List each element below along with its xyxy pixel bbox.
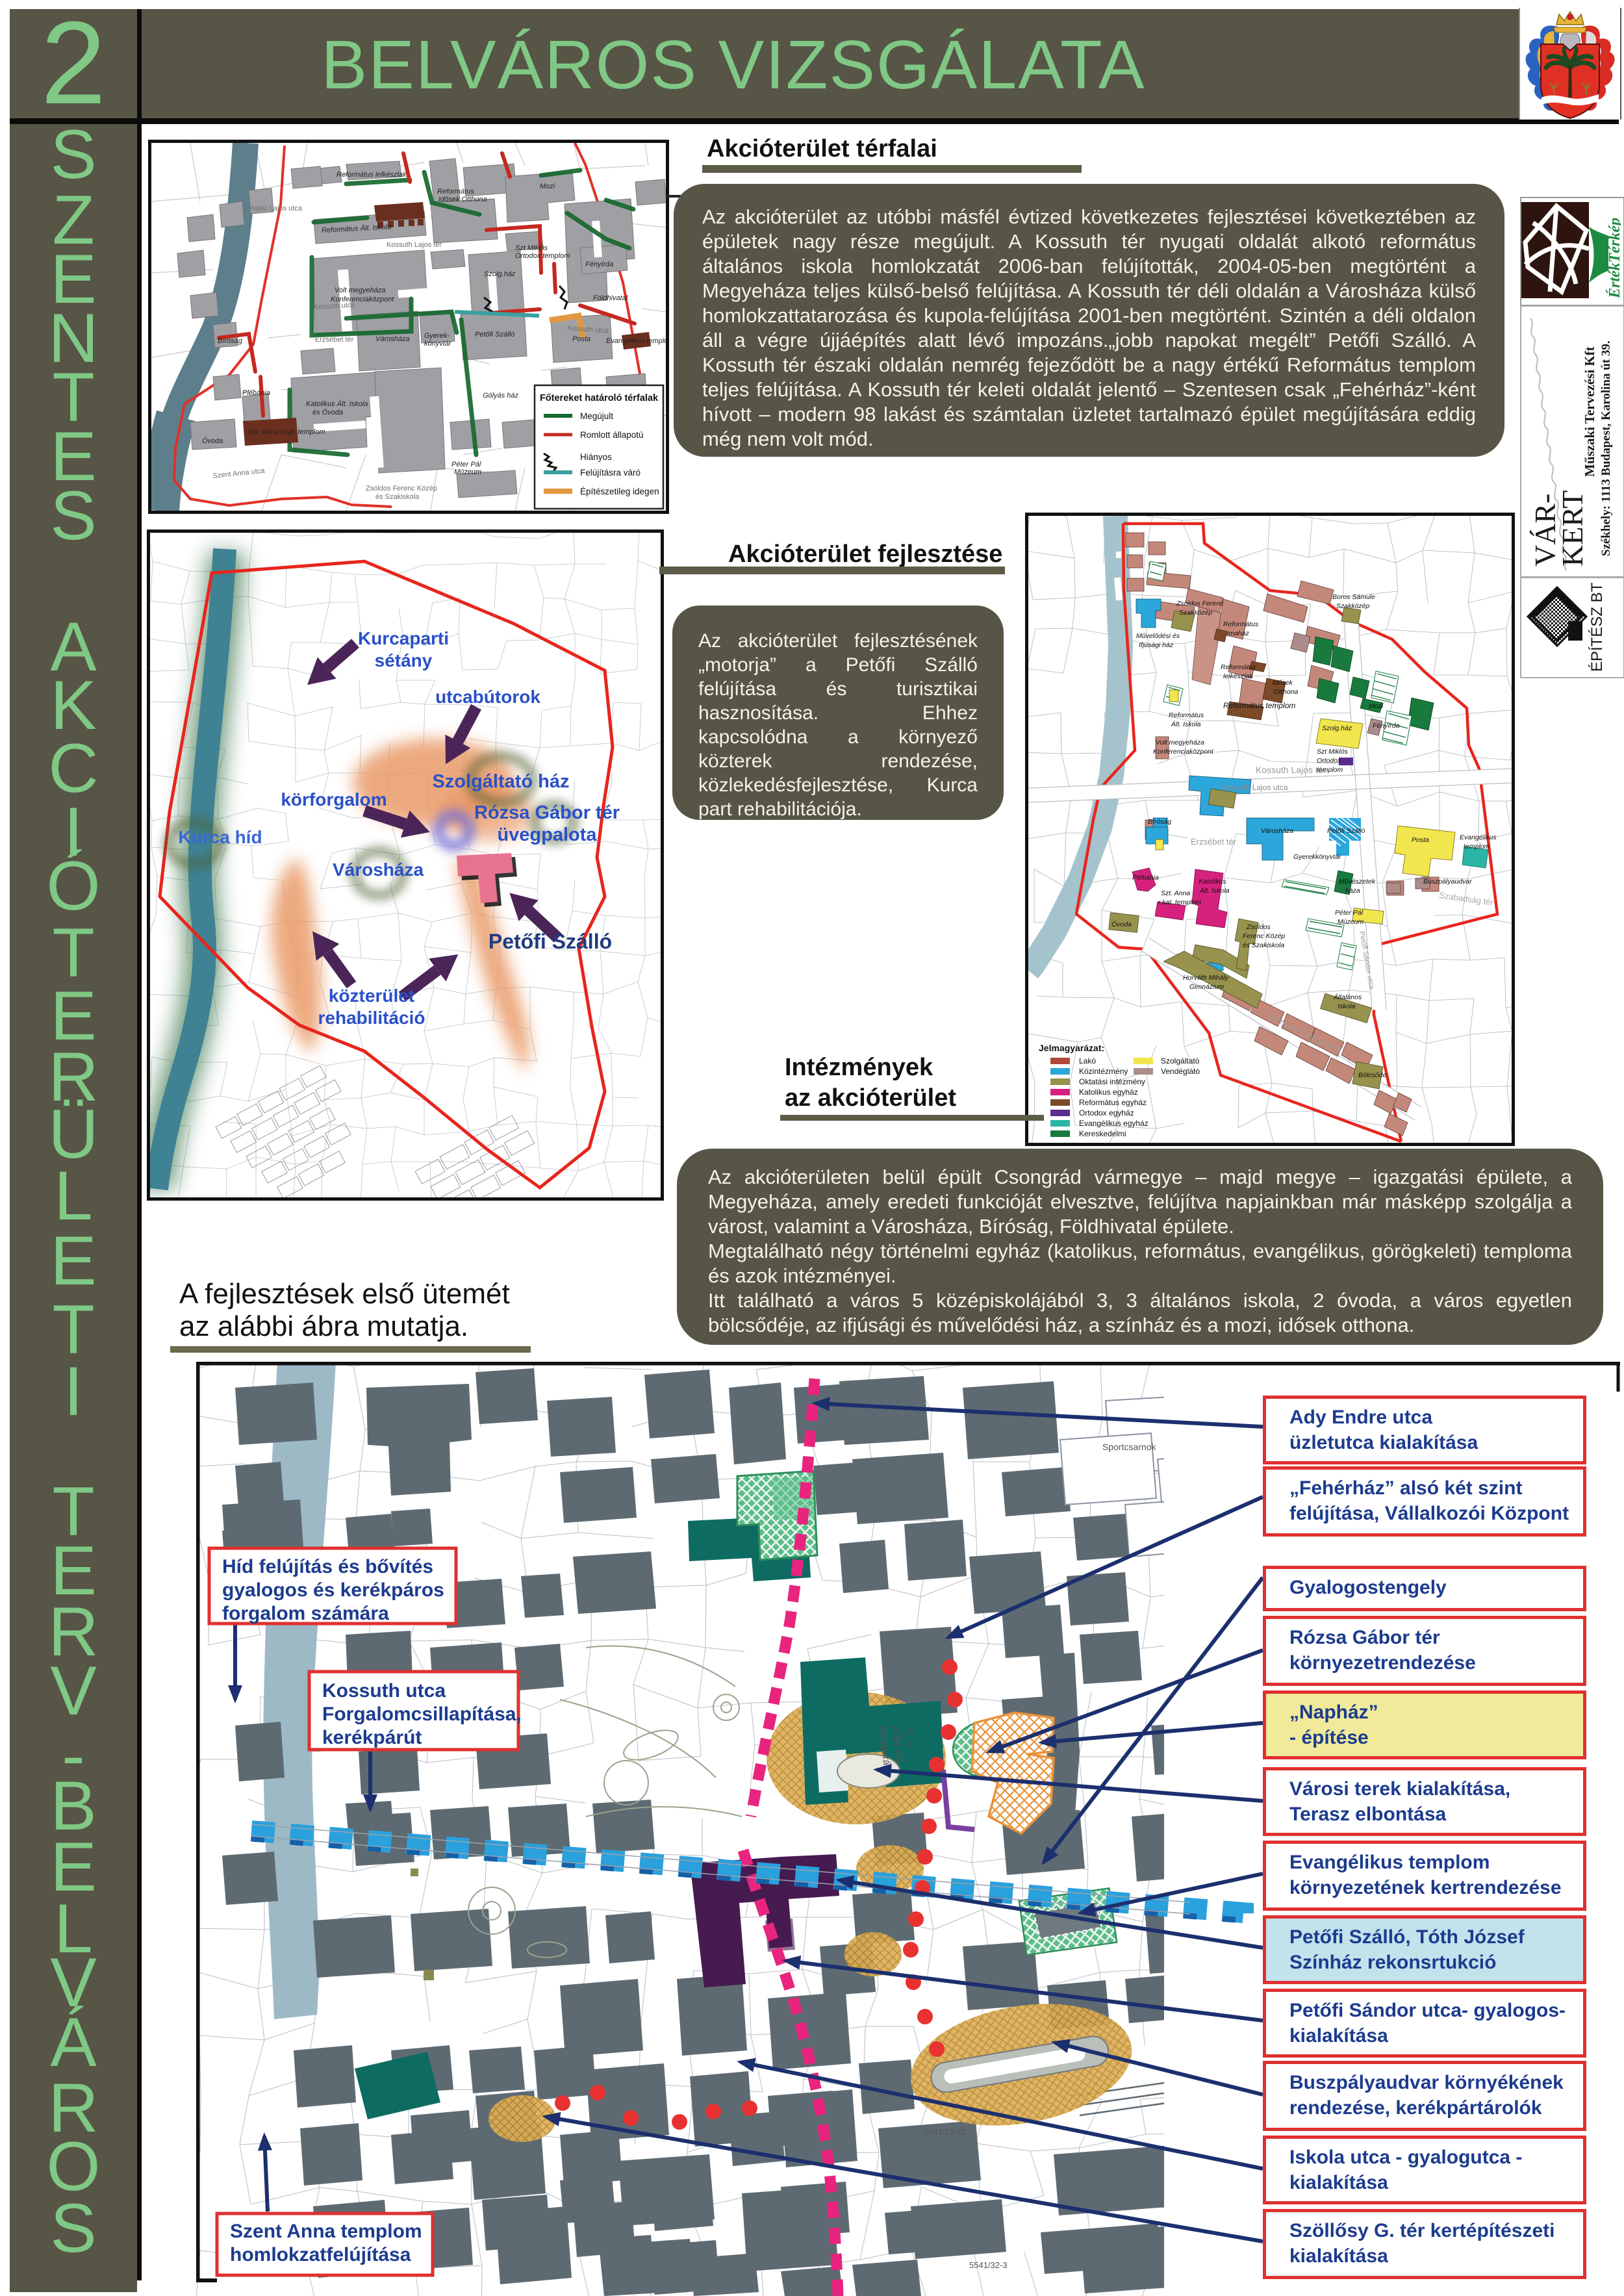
svg-text:Konferenciaközpont: Konferenciaközpont <box>1153 748 1214 756</box>
svg-text:Péter Pál: Péter Pál <box>1335 909 1364 917</box>
svg-text:Szt. Anna: Szt. Anna <box>1161 889 1190 897</box>
svg-text:Szakközép: Szakközép <box>1336 602 1370 610</box>
svg-text:Ortodox templom: Ortodox templom <box>515 252 570 260</box>
svg-text:Gyerekkönyvtár: Gyerekkönyvtár <box>1293 853 1341 861</box>
svg-text:sétány: sétány <box>375 650 433 670</box>
svg-text:Katolikus Ált. Iskola: Katolikus Ált. Iskola <box>306 400 368 408</box>
svg-text:Romlott állapotú: Romlott állapotú <box>580 430 644 440</box>
svg-text:Főtereket határoló térfalak: Főtereket határoló térfalak <box>540 393 659 403</box>
svg-text:Ifjúsági ház: Ifjúsági ház <box>1139 641 1174 649</box>
svg-text:Boros Sámule: Boros Sámule <box>1332 593 1375 601</box>
svg-text:Szakközép: Szakközép <box>1179 609 1213 617</box>
svg-text:Református: Református <box>1223 620 1259 628</box>
svg-text:Lakó: Lakó <box>1079 1056 1096 1065</box>
svg-text:Evangélikus templom: Evangélikus templom <box>606 337 666 345</box>
svg-text:ÉrtékTérkép: ÉrtékTérkép <box>1606 218 1621 299</box>
svg-text:Múzeum: Múzeum <box>454 468 481 476</box>
svg-text:Erzsébet tér: Erzsébet tér <box>1191 837 1237 847</box>
svg-text:Szt Miklós: Szt Miklós <box>515 244 548 252</box>
svg-text:Mozi: Mozi <box>1369 702 1384 710</box>
svg-text:Gólyás ház: Gólyás ház <box>483 392 519 400</box>
svg-text:Posta: Posta <box>1412 836 1429 844</box>
svg-text:Petőfi Szálló: Petőfi Szálló <box>488 930 612 953</box>
svg-text:Művészetek: Művészetek <box>1339 878 1376 886</box>
svg-text:templom: templom <box>1317 766 1343 774</box>
svg-text:G_6: G_6 <box>903 1729 916 1748</box>
svg-text:Földhivatal: Földhivatal <box>593 294 628 302</box>
svg-text:Fényírda: Fényírda <box>1373 722 1400 730</box>
svg-text:Zsoldos Ferenc Közép: Zsoldos Ferenc Közép <box>366 485 437 492</box>
svg-text:Kereskedelmi: Kereskedelmi <box>1079 1129 1126 1138</box>
svg-text:Forgalomcsillapítása,: Forgalomcsillapítása, <box>322 1703 522 1725</box>
svg-text:Városháza: Városháza <box>333 860 424 880</box>
svg-text:Szt Miklós: Szt Miklós <box>1317 748 1349 756</box>
svg-text:Művelődési és: Művelődési és <box>1136 632 1180 640</box>
svg-text:közterület: közterület <box>329 986 414 1006</box>
svg-text:5541/32-3: 5541/32-3 <box>969 2260 1008 2270</box>
svg-text:Általános: Általános <box>1333 993 1362 1001</box>
svg-text:Hajdú Lajos utca: Hajdú Lajos utca <box>249 205 303 212</box>
svg-text:Horváth Mihály: Horváth Mihály <box>1183 974 1229 982</box>
svg-text:imaház: imaház <box>1227 630 1250 637</box>
svg-text:Székhely: 1113 Budapest, Karol: Székhely: 1113 Budapest, Karolina út 39. <box>1599 340 1613 556</box>
svg-text:Hiányos: Hiányos <box>580 452 612 462</box>
svg-text:Sportcsarnok: Sportcsarnok <box>1102 1442 1156 1452</box>
svg-text:Oktatási intézmény: Oktatási intézmény <box>1079 1077 1145 1086</box>
svg-text:homlokzatfelújítása: homlokzatfelújítása <box>230 2244 411 2265</box>
svg-text:Városháza: Városháza <box>1261 827 1293 835</box>
svg-text:Idősek: Idősek <box>1273 679 1293 687</box>
svg-text:Múzeum: Múzeum <box>1338 918 1364 926</box>
svg-text:Szolg.ház: Szolg.ház <box>1322 724 1352 732</box>
svg-text:Ortodox: Ortodox <box>1317 757 1341 765</box>
svg-text:Péter Pál: Péter Pál <box>451 461 481 468</box>
svg-text:Ortodox egyház: Ortodox egyház <box>1079 1108 1134 1117</box>
svg-text:Ált. Iskola: Ált. Iskola <box>1199 886 1230 895</box>
svg-text:Kurca híd: Kurca híd <box>178 827 262 847</box>
svg-text:Városháza: Városháza <box>375 335 410 343</box>
svg-text:ÉPÍTÉSZ BT: ÉPÍTÉSZ BT <box>1588 582 1606 672</box>
svg-text:Kossuth Lajos tér: Kossuth Lajos tér <box>387 241 442 249</box>
svg-text:Szolgáltató ház: Szolgáltató ház <box>432 771 569 792</box>
svg-text:Szolg.ház: Szolg.ház <box>484 270 516 278</box>
svg-text:Kossuth Lajos utca: Kossuth Lajos utca <box>1222 783 1288 792</box>
svg-text:üvegpalota: üvegpalota <box>497 824 597 845</box>
svg-text:Híd felújítás és bővítés: Híd felújítás és bővítés <box>222 1556 433 1577</box>
svg-text:Katolikus: Katolikus <box>1199 878 1226 886</box>
svg-text:Megújult: Megújult <box>580 411 613 421</box>
svg-text:rehabilitáció: rehabilitáció <box>318 1008 425 1028</box>
svg-text:Posta: Posta <box>572 335 590 343</box>
svg-text:Református: Református <box>1169 711 1204 719</box>
svg-text:Kurcaparti: Kurcaparti <box>358 628 449 648</box>
svg-text:Szt. Anna r.kat. templom: Szt. Anna r.kat. templom <box>247 428 325 436</box>
svg-text:Építészetileg idegen: Építészetileg idegen <box>580 487 659 496</box>
svg-text:Szent Anna templom: Szent Anna templom <box>230 2221 422 2242</box>
svg-text:Evangélikus: Evangélikus <box>1460 834 1497 841</box>
svg-text:forgalom számára: forgalom számára <box>222 1603 389 1624</box>
svg-text:Zsoldos Ferenc: Zsoldos Ferenc <box>1176 600 1224 607</box>
svg-text:Evangélikus egyház: Evangélikus egyház <box>1079 1119 1148 1128</box>
svg-text:Óvoda: Óvoda <box>202 437 223 445</box>
svg-text:Kossuth Lajos tér: Kossuth Lajos tér <box>1256 765 1326 775</box>
svg-text:gyalogos és kerékpáros: gyalogos és kerékpáros <box>222 1579 444 1601</box>
svg-text:Bíróság: Bíróság <box>1148 818 1171 826</box>
svg-text:lelkészlak: lelkészlak <box>1223 672 1253 680</box>
svg-text:Rózsa Gábor tér: Rózsa Gábor tér <box>474 802 620 823</box>
svg-text:háza: háza <box>1345 887 1360 895</box>
svg-text:Ált. Iskola: Ált. Iskola <box>1171 720 1201 728</box>
svg-text:és Óvoda: és Óvoda <box>312 408 343 416</box>
svg-text:Iskola: Iskola <box>1338 1002 1356 1010</box>
svg-text:kerékpárút: kerékpárút <box>322 1727 422 1748</box>
svg-text:Mozi: Mozi <box>540 183 555 190</box>
svg-text:Bölcsőde: Bölcsőde <box>1358 1071 1386 1079</box>
svg-text:Gyerek-: Gyerek- <box>424 332 450 340</box>
svg-text:Óvoda: Óvoda <box>1111 920 1132 928</box>
svg-text:Közintézmény: Közintézmény <box>1079 1067 1128 1076</box>
svg-text:Idősek Otthona: Idősek Otthona <box>438 196 487 203</box>
svg-text:Petőfi Szálló: Petőfi Szálló <box>1327 827 1365 835</box>
svg-text:5541/51-62: 5541/51-62 <box>924 2127 967 2137</box>
svg-text:Ferenc Közép: Ferenc Közép <box>1243 932 1286 940</box>
svg-text:Szolgáltató: Szolgáltató <box>1161 1056 1200 1065</box>
svg-text:templom: templom <box>1464 843 1490 850</box>
svg-text:Katolikus egyház: Katolikus egyház <box>1079 1088 1138 1097</box>
svg-text:Buszpályaudvar: Buszpályaudvar <box>1423 878 1472 886</box>
svg-text:r.kat. templom: r.kat. templom <box>1158 899 1201 906</box>
svg-text:Petőfi Szálló: Petőfi Szálló <box>475 331 514 338</box>
svg-text:Református egyház: Református egyház <box>1079 1098 1147 1107</box>
svg-text:Jelmagyarázat:: Jelmagyarázat: <box>1039 1043 1104 1053</box>
svg-text:és Szakiskola: és Szakiskola <box>375 493 420 501</box>
svg-text:KERT: KERT <box>1556 491 1589 567</box>
svg-text:Vendéglátó: Vendéglátó <box>1161 1067 1200 1076</box>
svg-text:Református: Református <box>437 188 474 196</box>
svg-text:Református templom: Református templom <box>1223 701 1295 710</box>
svg-text:Volt megyeháza: Volt megyeháza <box>1156 739 1204 746</box>
svg-text:Református: Református <box>1221 663 1256 671</box>
svg-text:Volt megyeháza: Volt megyeháza <box>335 287 385 294</box>
svg-text:körforgalom: körforgalom <box>281 789 387 810</box>
svg-text:Kossuth utca: Kossuth utca <box>322 1680 446 1702</box>
svg-text:Szent Anna utca: Szent Anna utca <box>212 467 266 480</box>
svg-text:Erzsébet tér: Erzsébet tér <box>315 336 354 344</box>
svg-text:és Szakiskola: és Szakiskola <box>1243 941 1284 949</box>
svg-text:Szabadság tér: Szabadság tér <box>1439 890 1495 908</box>
svg-text:Bíróság: Bíróság <box>218 337 243 345</box>
svg-text:könyvtár: könyvtár <box>424 340 452 348</box>
svg-text:Református lelkészlak: Református lelkészlak <box>336 171 407 179</box>
svg-text:Otthona: Otthona <box>1274 688 1299 696</box>
svg-text:Műszaki Tervezési Kft: Műszaki Tervezési Kft <box>1582 346 1597 477</box>
svg-text:Felújításra váró: Felújításra váró <box>580 468 641 478</box>
svg-text:Plébánia: Plébánia <box>242 389 270 397</box>
svg-text:Plébánia: Plébánia <box>1132 874 1159 882</box>
svg-text:Zsoldos: Zsoldos <box>1246 923 1271 931</box>
svg-text:Gimnázium: Gimnázium <box>1189 983 1224 991</box>
svg-text:utcabútorok: utcabútorok <box>435 687 540 707</box>
svg-text:Fényírda: Fényírda <box>585 261 613 268</box>
